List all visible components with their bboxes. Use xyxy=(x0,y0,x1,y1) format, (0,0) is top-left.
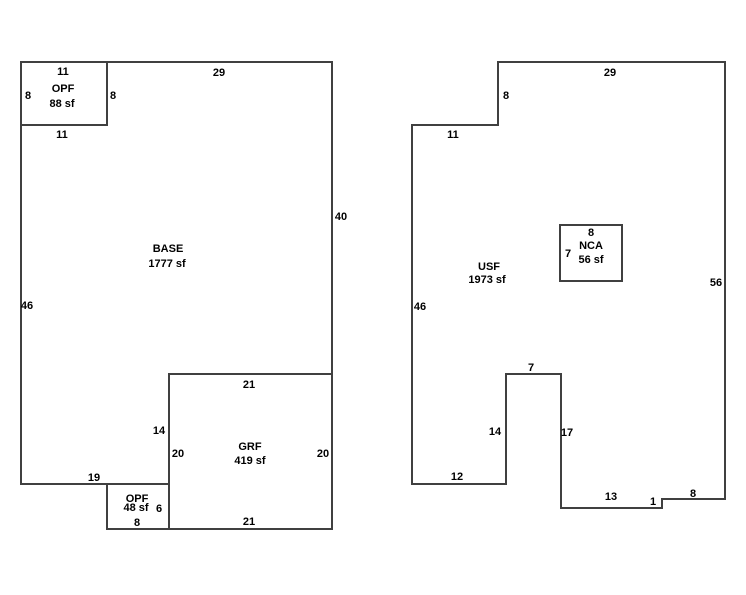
dimension-label: 46 xyxy=(414,301,426,313)
dimension-label: 56 xyxy=(710,277,722,289)
area-size-label: 419 sf xyxy=(234,455,266,467)
dimension-label: 17 xyxy=(561,427,573,439)
dimension-label: 11 xyxy=(56,129,68,141)
dimension-label: 46 xyxy=(21,300,33,312)
sketch-canvas: 11OPF88 sf88291140BASE1777 sf46211420GRF… xyxy=(0,0,746,595)
right-floorplan: 298115646USF1973 sf8NCA756 sf71417121318 xyxy=(412,62,725,508)
area-size-label: 48 sf xyxy=(123,502,148,514)
dimension-label: 21 xyxy=(243,379,255,391)
dimension-label: 13 xyxy=(605,491,617,503)
area-name-label: GRF xyxy=(238,441,262,453)
dimension-label: 8 xyxy=(110,90,116,102)
area-name-label: USF xyxy=(478,261,500,273)
dimension-label: 11 xyxy=(447,129,459,141)
area-size-label: 56 sf xyxy=(578,254,603,266)
dimension-label: 6 xyxy=(156,503,162,515)
dimension-label: 20 xyxy=(317,448,329,460)
dimension-label: 8 xyxy=(690,488,696,500)
area-size-label: 1777 sf xyxy=(148,258,186,270)
dimension-label: 14 xyxy=(489,426,502,438)
floorplan-sketch-page: 11OPF88 sf88291140BASE1777 sf46211420GRF… xyxy=(0,0,746,595)
dimension-label: 8 xyxy=(134,517,140,529)
dimension-label: 14 xyxy=(153,425,166,437)
dimension-label: 8 xyxy=(503,90,509,102)
dimension-label: 29 xyxy=(604,67,616,79)
dimension-label: 40 xyxy=(335,211,347,223)
dimension-label: 21 xyxy=(243,516,255,528)
area-name-label: BASE xyxy=(153,243,184,255)
dimension-label: 8 xyxy=(25,90,31,102)
dimension-label: 7 xyxy=(528,362,534,374)
dimension-label: 11 xyxy=(57,66,69,78)
dimension-label: 20 xyxy=(172,448,184,460)
area-name-label: NCA xyxy=(579,240,603,252)
dimension-label: 8 xyxy=(588,227,594,239)
dimension-label: 7 xyxy=(565,248,571,260)
area-size-label: 88 sf xyxy=(49,98,74,110)
dimension-label: 1 xyxy=(650,496,656,508)
dimension-label: 12 xyxy=(451,471,463,483)
dimension-label: 19 xyxy=(88,472,100,484)
area-name-label: OPF xyxy=(52,83,75,95)
left-floorplan: 11OPF88 sf88291140BASE1777 sf46211420GRF… xyxy=(21,62,347,529)
area-size-label: 1973 sf xyxy=(468,274,506,286)
dimension-label: 29 xyxy=(213,67,225,79)
